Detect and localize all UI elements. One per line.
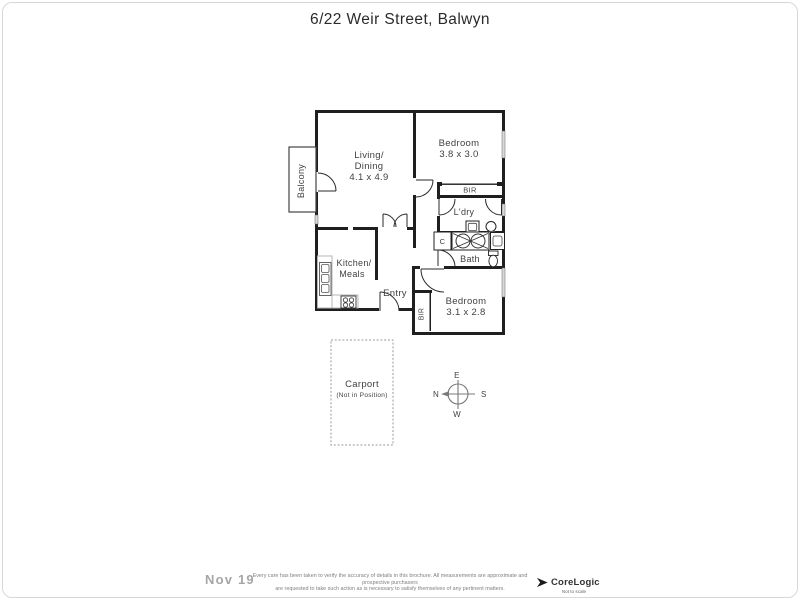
laundry-trough	[486, 222, 496, 232]
north-arrow-icon	[441, 391, 449, 396]
living-dims: 4.1 x 4.9	[349, 172, 388, 183]
disclaimer-line1: Every care has been taken to verify the …	[253, 573, 528, 586]
living-label: Dining	[355, 161, 384, 172]
door-arc	[486, 199, 502, 215]
bedroom1-label: Bedroom	[439, 138, 480, 149]
wall	[502, 297, 505, 335]
wall	[412, 332, 505, 335]
laundry-label: L'dry	[454, 207, 475, 217]
compass-north-label: N	[433, 390, 439, 399]
toilet-bowl	[489, 255, 498, 267]
door-arc	[438, 250, 455, 267]
compass-east-label: E	[454, 371, 460, 380]
bedroom2-dims: 3.1 x 2.8	[446, 307, 485, 318]
wall	[412, 266, 415, 335]
kitchen-label: Kitchen/	[337, 258, 372, 268]
corelogic-logo-icon	[536, 576, 549, 589]
wall	[399, 308, 413, 311]
window	[502, 204, 505, 216]
slider-stub	[497, 182, 503, 186]
compass-south-label: S	[481, 390, 487, 399]
bedroom1-dims: 3.8 x 3.0	[439, 149, 478, 160]
wall	[444, 266, 458, 269]
slider-track	[430, 293, 432, 331]
kitchen-label: Meals	[339, 269, 365, 279]
door-arc	[318, 173, 336, 191]
disclaimer-line2: are requested to take such action as is …	[275, 586, 505, 592]
bath-label: Bath	[460, 254, 480, 264]
bedroom2-label: Bedroom	[446, 296, 487, 307]
brand-name: CoreLogic	[551, 577, 600, 588]
wall	[407, 227, 416, 230]
wall	[437, 216, 440, 233]
disclaimer: Every care has been taken to verify the …	[242, 573, 538, 593]
wall	[375, 227, 378, 280]
window	[315, 215, 318, 224]
carport-note: (Not in Position)	[336, 392, 387, 399]
wall	[353, 227, 377, 230]
balcony-label: Balcony	[296, 164, 306, 198]
window	[502, 268, 505, 297]
wall	[315, 110, 505, 113]
wall	[440, 195, 505, 198]
window	[502, 131, 505, 158]
bir1-label: BIR	[463, 186, 477, 195]
slider-stub	[437, 182, 442, 186]
floorplan: Living/ Dining 4.1 x 4.9 Bedroom 3.8 x 3…	[0, 0, 800, 600]
entry-label: Entry	[383, 288, 407, 299]
compass	[441, 380, 475, 409]
cupboard-label: C	[440, 237, 446, 246]
wall	[318, 227, 348, 230]
wall	[413, 110, 416, 178]
door-arc	[421, 269, 444, 292]
wall	[457, 266, 505, 269]
carport-label: Carport	[345, 379, 379, 390]
door-arc	[416, 180, 433, 197]
compass-west-label: W	[453, 410, 461, 419]
living-label: Living/	[354, 150, 384, 161]
wall	[412, 290, 432, 293]
wall	[412, 266, 420, 269]
wall	[502, 110, 505, 131]
wall	[413, 195, 416, 248]
scale-note: Not to scale	[549, 589, 599, 594]
bir2-label: BIR	[419, 308, 426, 321]
corelogic-brand: CoreLogic	[536, 576, 600, 589]
door-arc	[439, 199, 455, 215]
